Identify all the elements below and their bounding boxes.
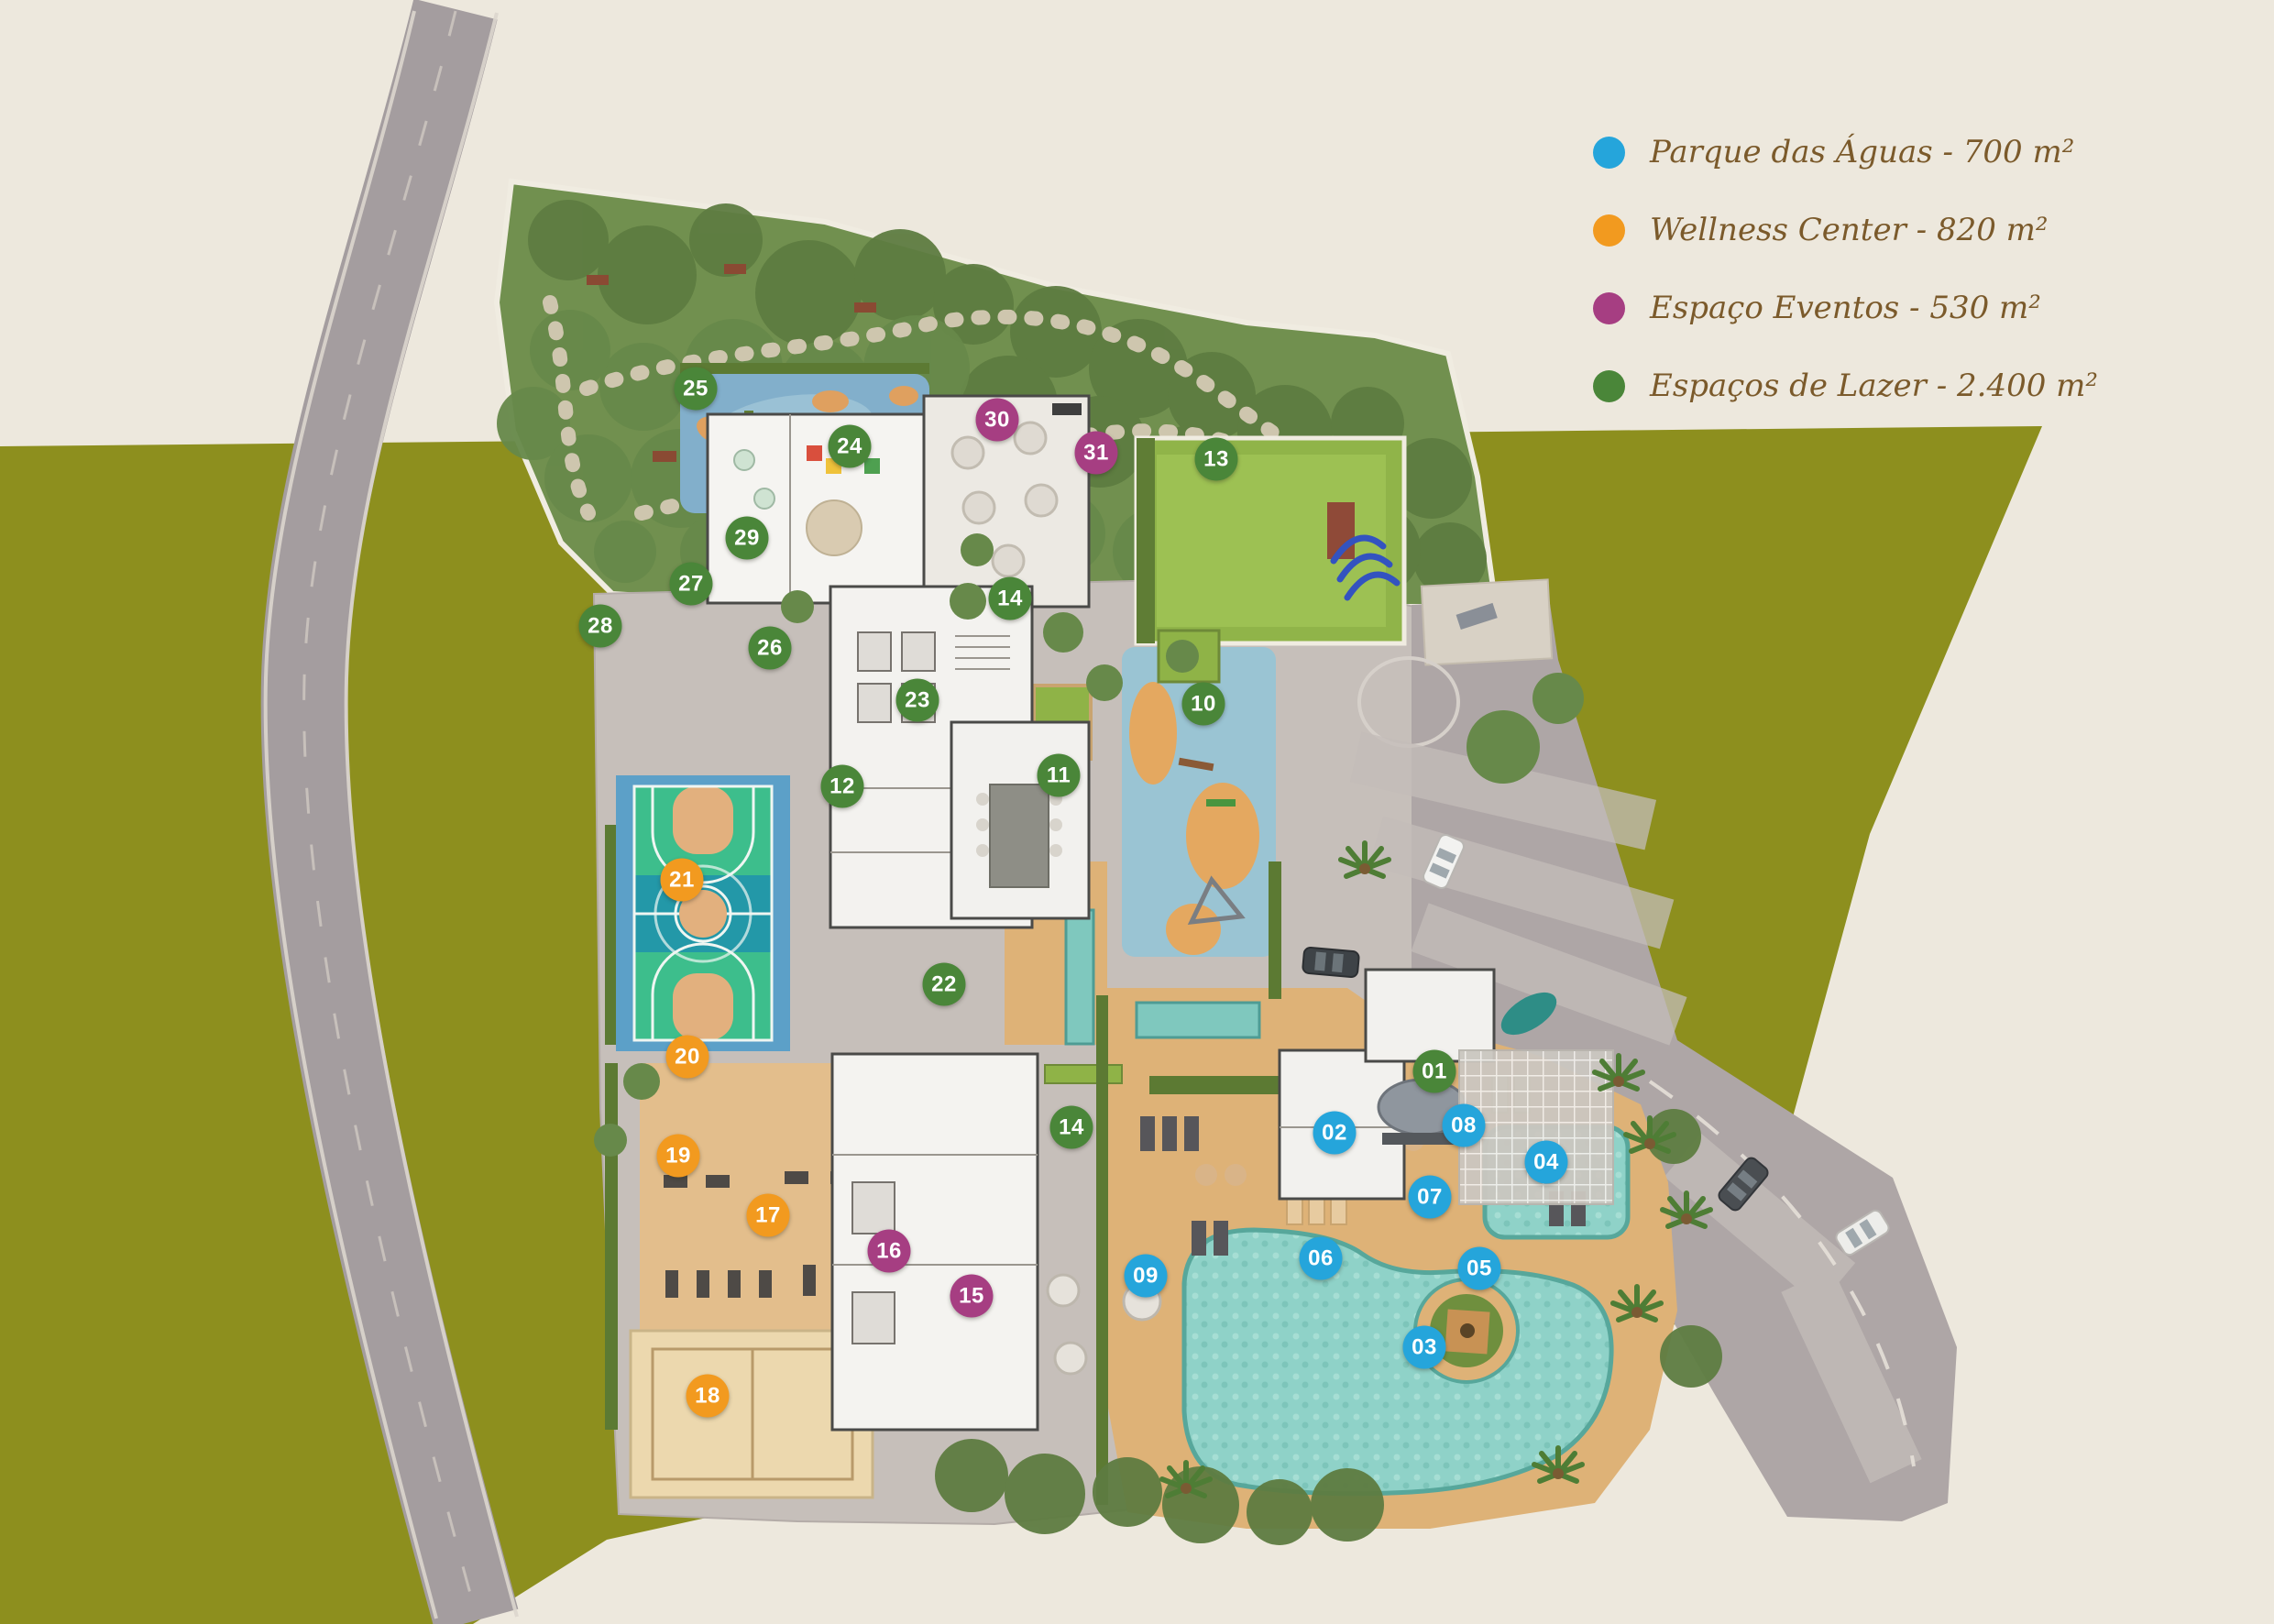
map-marker-03[interactable]: 03 [1403,1326,1446,1369]
map-marker-15[interactable]: 15 [950,1275,994,1318]
legend-item-label: Wellness Center - 820 m² [1650,212,2049,248]
spa-gym-block [832,1054,1038,1430]
map-marker-17[interactable]: 17 [747,1194,790,1237]
map-marker-04[interactable]: 04 [1525,1141,1568,1184]
map-marker-31[interactable]: 31 [1075,432,1118,475]
map-marker-06[interactable]: 06 [1300,1237,1343,1280]
map-marker-14[interactable]: 14 [1050,1106,1093,1149]
map-marker-13[interactable]: 13 [1195,438,1238,481]
legend-color-dot [1593,370,1625,402]
legend-item-label: Espaços de Lazer - 2.400 m² [1650,368,2098,404]
map-marker-21[interactable]: 21 [661,859,704,902]
legend-color-dot [1593,137,1625,169]
water-mirror-horizontal [1137,1003,1259,1037]
event-lawn [1137,438,1404,643]
legend-item: Parque das Águas - 700 m² [1593,136,2098,169]
legend-item-label: Espaço Eventos - 530 m² [1650,290,2041,326]
legend-item-label: Parque das Águas - 700 m² [1650,134,2074,170]
map-marker-25[interactable]: 25 [675,368,718,411]
legend: Parque das Águas - 700 m² Wellness Cente… [1593,136,2098,447]
map-marker-14[interactable]: 14 [989,577,1032,620]
masterplan-page: 0102030405060708091011121314141516171819… [0,0,2274,1624]
map-marker-01[interactable]: 01 [1413,1050,1456,1093]
map-marker-19[interactable]: 19 [657,1135,700,1178]
legend-item: Espaço Eventos - 530 m² [1593,291,2098,324]
map-marker-08[interactable]: 08 [1443,1104,1486,1147]
map-marker-05[interactable]: 05 [1458,1247,1501,1290]
map-marker-10[interactable]: 10 [1182,683,1225,726]
map-marker-07[interactable]: 07 [1409,1176,1452,1219]
map-marker-12[interactable]: 12 [821,765,864,808]
map-marker-16[interactable]: 16 [868,1230,911,1273]
map-marker-02[interactable]: 02 [1313,1112,1357,1155]
legend-color-dot [1593,292,1625,324]
zen-garden [1422,579,1552,664]
map-marker-24[interactable]: 24 [829,425,872,468]
legend-item: Wellness Center - 820 m² [1593,214,2098,247]
basketball-court [616,775,790,1051]
water-mirror-vertical [1066,910,1093,1044]
map-marker-29[interactable]: 29 [726,517,769,560]
map-marker-30[interactable]: 30 [976,399,1019,442]
map-marker-23[interactable]: 23 [896,679,939,722]
map-marker-20[interactable]: 20 [666,1036,709,1079]
legend-color-dot [1593,214,1625,247]
map-marker-09[interactable]: 09 [1125,1255,1168,1298]
map-marker-22[interactable]: 22 [923,963,966,1006]
map-marker-27[interactable]: 27 [670,563,713,606]
map-marker-18[interactable]: 18 [687,1375,730,1418]
map-marker-28[interactable]: 28 [579,605,622,648]
map-marker-26[interactable]: 26 [749,627,792,670]
map-marker-11[interactable]: 11 [1038,754,1081,797]
legend-item: Espaços de Lazer - 2.400 m² [1593,369,2098,402]
gourmet-block [951,722,1089,918]
car-dark [1302,947,1359,977]
